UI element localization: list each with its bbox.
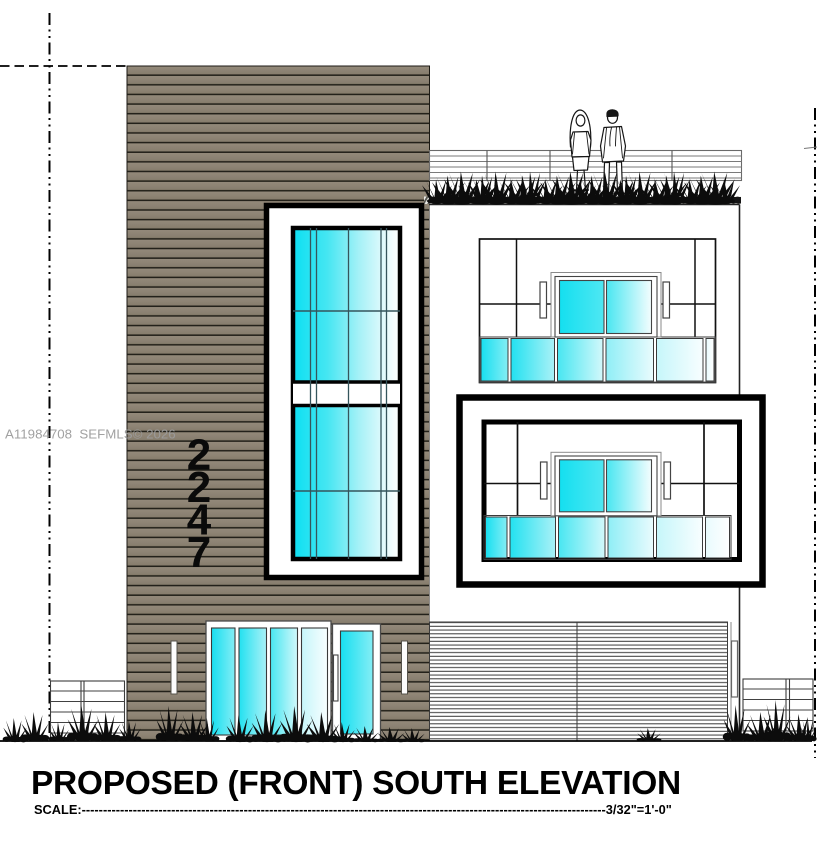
svg-text:7: 7 [187,528,211,577]
svg-text:A11984708 SEFMLS© 2026: A11984708 SEFMLS© 2026 [5,427,176,442]
svg-text:PROPOSED (FRONT) SOUTH ELEVATI: PROPOSED (FRONT) SOUTH ELEVATION [31,765,681,802]
svg-text:SCALE:------------------------: SCALE:----------------------------------… [34,802,672,817]
